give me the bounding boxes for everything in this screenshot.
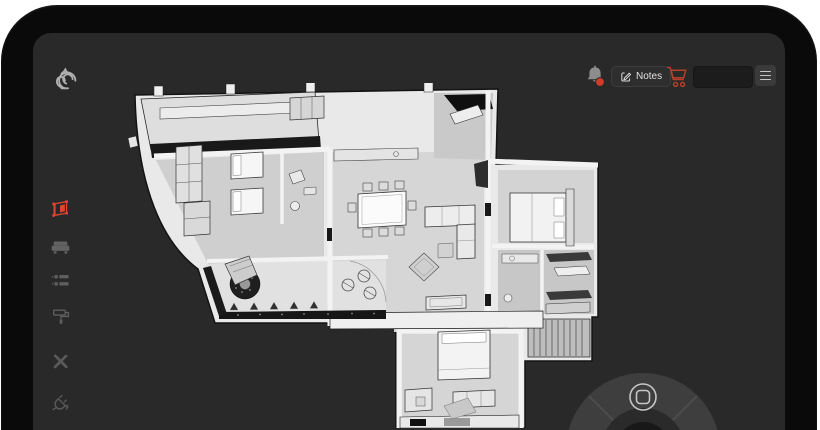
sidebar-item-item-list[interactable] (47, 267, 73, 293)
toolbar-input[interactable] (693, 66, 753, 88)
sidebar-item-electrical[interactable] (47, 390, 73, 416)
hamburger-menu-icon[interactable] (755, 65, 776, 86)
paint-roller-icon (50, 306, 71, 327)
note-edit-icon (620, 71, 632, 83)
tablet-mockup: Notes (0, 0, 820, 430)
cart-icon[interactable] (665, 63, 689, 89)
plug-icon (50, 393, 71, 414)
app-screen: Notes (33, 33, 785, 430)
floor-plan-icon (50, 198, 71, 219)
squirrel-logo-icon[interactable] (51, 60, 81, 90)
notes-button[interactable]: Notes (611, 66, 671, 87)
crossed-tools-icon (50, 351, 71, 372)
sidebar-item-floor-plan[interactable] (47, 195, 73, 221)
navigation-wheel[interactable] (563, 370, 723, 430)
tablet-bezel: Notes (1, 5, 817, 430)
notes-button-label: Notes (636, 71, 662, 82)
list-icon (50, 270, 71, 291)
sidebar-item-design-tools[interactable] (47, 348, 73, 374)
sidebar-item-paint[interactable] (47, 303, 73, 329)
floor-plan-3d-view[interactable] (123, 83, 613, 428)
sidebar-item-furniture[interactable] (47, 233, 73, 259)
sofa-icon (50, 236, 71, 257)
